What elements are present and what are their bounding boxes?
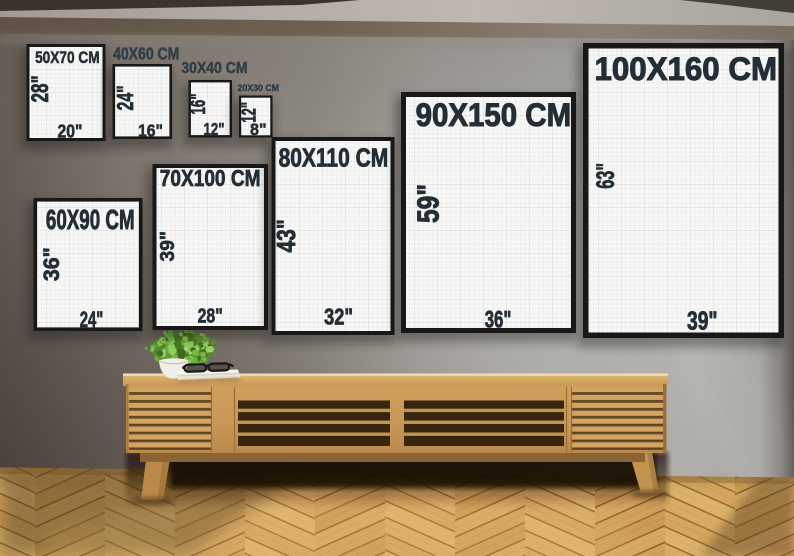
svg-text:63": 63" [592,163,620,189]
svg-text:50X70 CM: 50X70 CM [35,48,100,67]
svg-text:43": 43" [271,219,301,252]
svg-text:28": 28" [27,75,54,102]
svg-text:16": 16" [138,121,163,141]
svg-text:100X160 CM: 100X160 CM [595,51,778,87]
svg-text:36": 36" [39,247,64,281]
svg-text:80X110 CM: 80X110 CM [279,144,389,172]
svg-text:12": 12" [204,119,225,139]
svg-text:20X30 CM: 20X30 CM [238,83,280,93]
svg-text:20": 20" [58,121,83,142]
svg-text:32": 32" [324,304,353,330]
svg-text:59": 59" [413,184,446,223]
svg-text:70X100 CM: 70X100 CM [160,165,261,191]
svg-text:90X150 CM: 90X150 CM [416,97,571,133]
svg-text:30X40 CM: 30X40 CM [181,60,247,77]
svg-text:8": 8" [250,120,267,139]
svg-text:24": 24" [112,85,138,110]
svg-text:60X90 CM: 60X90 CM [46,204,135,235]
svg-text:39": 39" [157,231,179,262]
svg-text:28": 28" [198,306,223,328]
svg-text:24": 24" [80,307,104,332]
svg-text:16": 16" [187,94,210,115]
svg-text:40X60 CM: 40X60 CM [113,44,179,64]
svg-text:36": 36" [485,306,512,333]
svg-text:39": 39" [687,308,718,336]
